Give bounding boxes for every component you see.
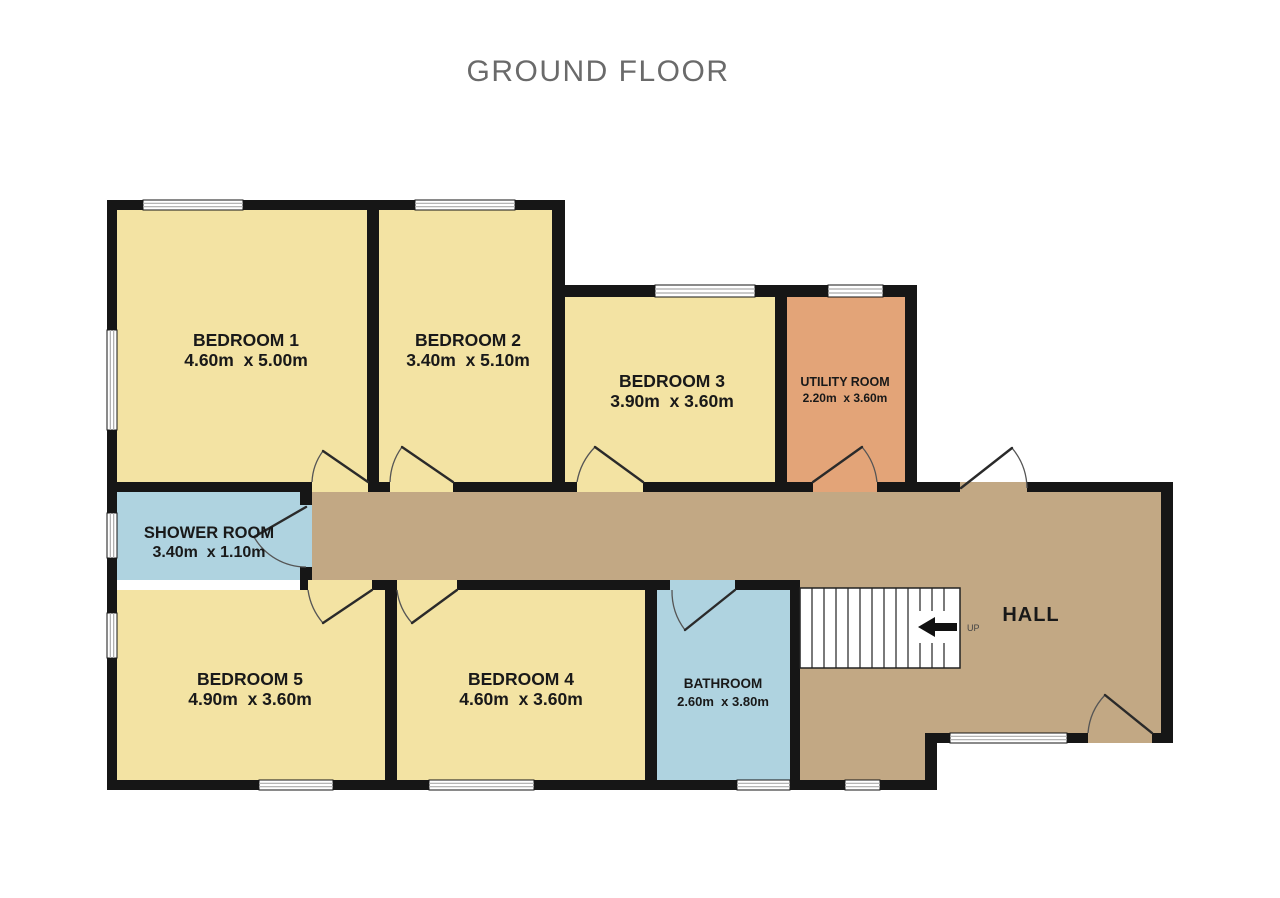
stairs-up-label: UP — [967, 623, 980, 633]
door-opening — [308, 580, 372, 590]
window — [107, 330, 117, 430]
shower-room-dims: 3.40m x 1.10m — [153, 544, 266, 561]
door-opening — [670, 580, 735, 590]
window — [107, 513, 117, 558]
window — [655, 285, 755, 297]
bedroom-3-dims: 3.90m x 3.60m — [610, 391, 734, 411]
window — [143, 200, 243, 210]
window-frame — [950, 733, 1067, 743]
wall-segment — [107, 200, 117, 790]
window — [259, 780, 333, 790]
door-opening — [397, 580, 457, 590]
bedroom-2-label: BEDROOM 2 — [415, 330, 521, 350]
bedroom-5-dims: 4.90m x 3.60m — [188, 689, 312, 709]
door-opening — [300, 505, 312, 567]
utility-room-label: UTILITY ROOM — [800, 375, 889, 389]
door-opening — [1088, 733, 1152, 743]
door-opening — [312, 482, 368, 492]
window-frame — [737, 780, 790, 790]
bedroom-1-label: BEDROOM 1 — [193, 330, 299, 350]
floorplan: UP GROUND FLOOR BEDROOM 1 4.60m x 5.00m … — [0, 0, 1280, 898]
wall-segment — [367, 210, 379, 482]
window — [845, 780, 880, 790]
window-frame — [828, 285, 883, 297]
window-frame — [143, 200, 243, 210]
wall-segment — [107, 482, 905, 492]
wall-segment — [905, 285, 917, 492]
wall-segment — [1161, 482, 1173, 743]
window-frame — [107, 330, 117, 430]
wall-segment — [925, 733, 937, 790]
room-utility — [787, 297, 905, 482]
bedroom-2-dims: 3.40m x 5.10m — [406, 350, 530, 370]
stairs: UP — [800, 588, 980, 668]
bedroom-4-dims: 4.60m x 3.60m — [459, 689, 583, 709]
window — [737, 780, 790, 790]
door-opening — [960, 482, 1027, 492]
window — [415, 200, 515, 210]
window-frame — [415, 200, 515, 210]
page-title: GROUND FLOOR — [466, 55, 729, 88]
hall-label: HALL — [1002, 604, 1059, 626]
door-opening — [813, 482, 877, 492]
window-frame — [429, 780, 534, 790]
wall-segment — [552, 200, 565, 482]
window — [107, 613, 117, 658]
shower-room-label: SHOWER ROOM — [144, 524, 274, 542]
bedroom-1-dims: 4.60m x 5.00m — [184, 350, 308, 370]
bathroom-label: BATHROOM — [684, 676, 763, 691]
wall-segment — [385, 590, 397, 780]
door-opening — [390, 482, 453, 492]
window-frame — [259, 780, 333, 790]
window-frame — [107, 513, 117, 558]
wall-segment — [790, 590, 800, 790]
door-front-entrance — [960, 448, 1027, 492]
bathroom-dims: 2.60m x 3.80m — [677, 694, 769, 709]
window-frame — [845, 780, 880, 790]
window — [950, 733, 1067, 743]
bedroom-5-label: BEDROOM 5 — [197, 669, 303, 689]
wall-segment — [775, 297, 787, 482]
utility-room-dims: 2.20m x 3.60m — [803, 391, 888, 405]
floorplan-page: UP GROUND FLOOR BEDROOM 1 4.60m x 5.00m … — [0, 0, 1280, 898]
wall-segment — [905, 482, 1173, 492]
window — [429, 780, 534, 790]
wall-segment — [645, 590, 657, 780]
bedroom-4-label: BEDROOM 4 — [468, 669, 574, 689]
bedroom-3-label: BEDROOM 3 — [619, 371, 725, 391]
window — [828, 285, 883, 297]
window-frame — [655, 285, 755, 297]
window-frame — [107, 613, 117, 658]
door-opening — [577, 482, 643, 492]
